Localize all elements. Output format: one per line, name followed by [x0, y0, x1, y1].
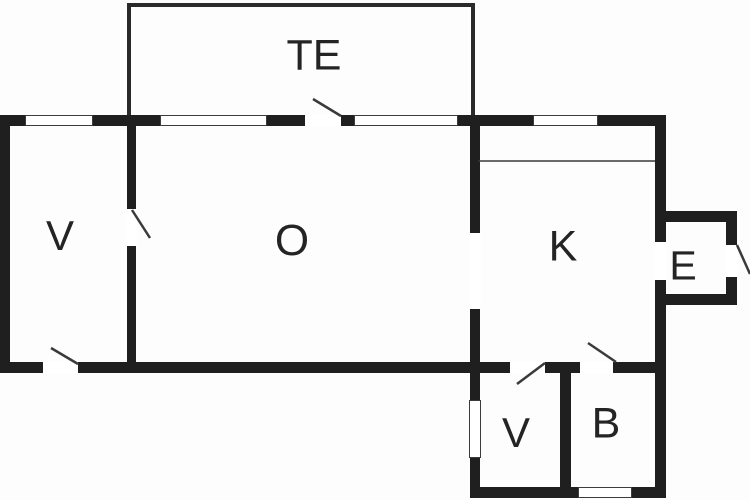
passage-k-e	[654, 242, 667, 280]
e-top-wall	[655, 211, 737, 222]
floor-plan: TEVOKEVB	[0, 0, 750, 500]
window-ext-left	[469, 400, 481, 458]
room-v-ext-label: V	[502, 412, 530, 454]
window-top-3	[354, 115, 458, 126]
ext-bottom-wall	[470, 487, 666, 498]
door-opening-entry	[43, 361, 78, 374]
window-top-4	[533, 115, 598, 126]
right-wall	[655, 115, 666, 498]
room-o-label: O	[275, 219, 309, 263]
e-bottom-wall	[655, 294, 737, 305]
te-left-wall	[127, 3, 131, 115]
door-opening-e-exterior	[725, 245, 738, 277]
door-opening-ext-v	[510, 361, 545, 374]
ext-top-wall	[480, 362, 666, 373]
window-ext-bottom	[578, 487, 632, 498]
te-right-wall	[471, 3, 475, 115]
room-e-label: E	[669, 246, 696, 287]
room-v-left-label: V	[46, 215, 74, 257]
room-k-label: K	[549, 226, 578, 269]
door-opening-te	[305, 114, 341, 127]
window-top-2	[160, 115, 267, 126]
window-top-1	[25, 115, 93, 126]
swing-e-exterior	[737, 245, 750, 274]
door-opening-b	[580, 361, 613, 374]
te-top-wall	[127, 3, 475, 7]
door-opening-v-o	[126, 209, 137, 246]
room-te-label: TE	[287, 35, 342, 78]
room-b-label: B	[592, 403, 621, 446]
swing-b	[588, 343, 616, 362]
passage-o-k	[469, 233, 481, 309]
door-swing-overlay	[0, 0, 750, 500]
left-wall	[0, 115, 10, 373]
v-b-divider	[560, 373, 571, 487]
